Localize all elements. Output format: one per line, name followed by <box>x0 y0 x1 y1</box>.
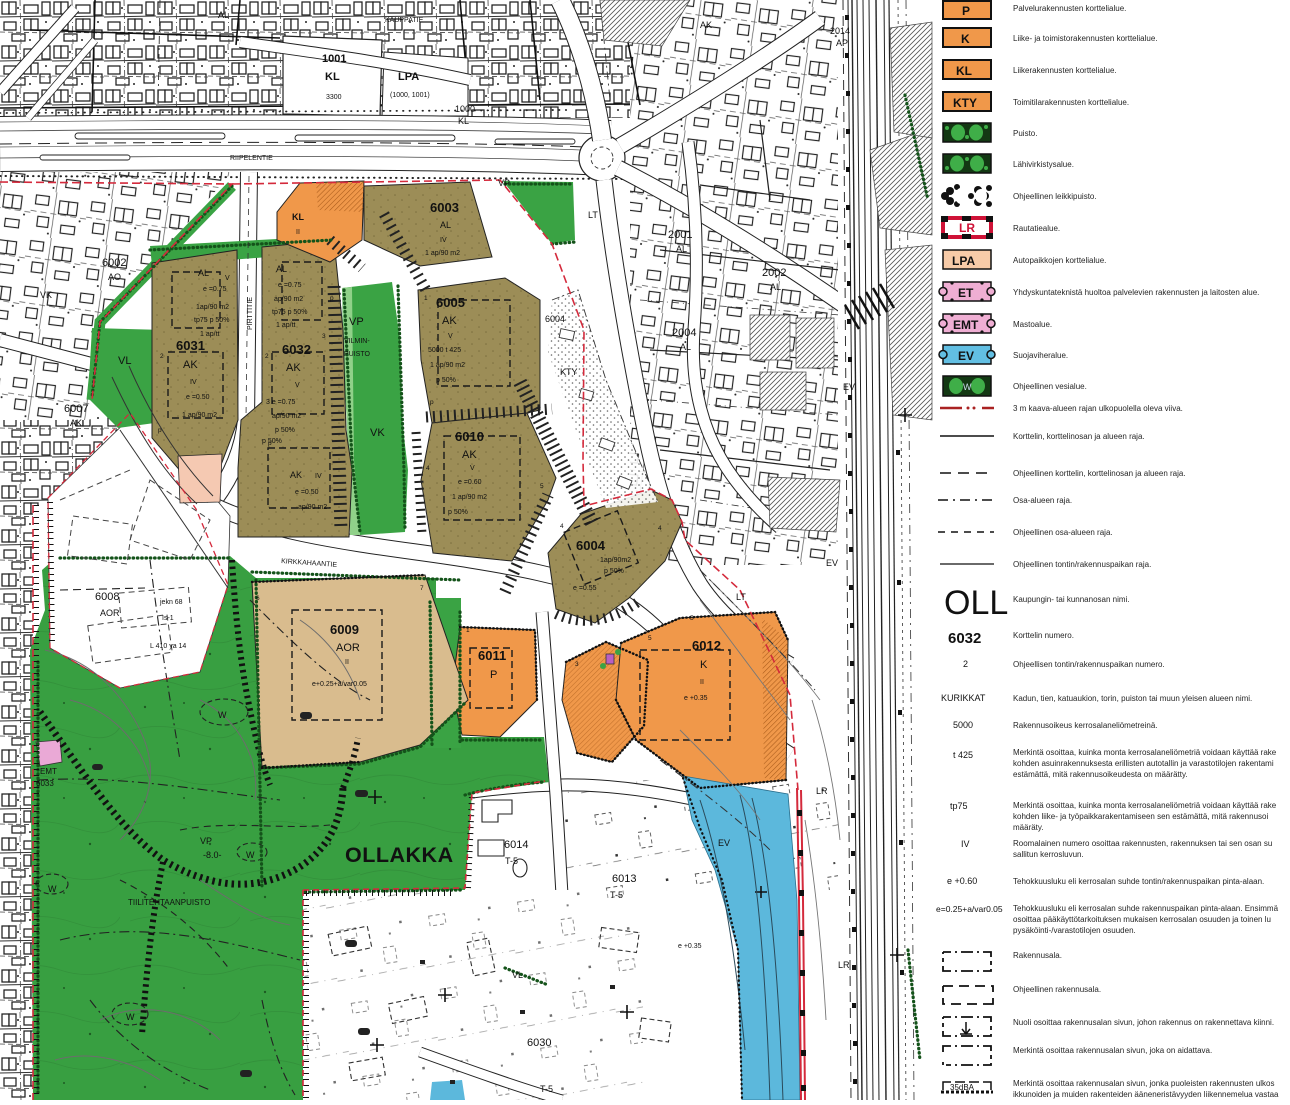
svg-text:osoittaa pääkäyttötarkoituksen: osoittaa pääkäyttötarkoituksen mukaisen … <box>1013 915 1271 924</box>
svg-text:KL: KL <box>292 212 304 222</box>
svg-text:6014: 6014 <box>504 839 528 851</box>
svg-text:PIRTTITIE: PIRTTITIE <box>247 297 254 330</box>
svg-text:e +0.60: e +0.60 <box>947 876 977 886</box>
svg-text:Korttelin, korttelinosan ja al: Korttelin, korttelinosan ja alueen raja. <box>1013 432 1145 441</box>
svg-text:6030: 6030 <box>527 1037 551 1049</box>
svg-text:6012: 6012 <box>692 638 721 653</box>
svg-text:EV: EV <box>958 349 974 363</box>
svg-text:LPA: LPA <box>398 71 419 83</box>
svg-text:5: 5 <box>540 483 544 490</box>
svg-text:Ohjeellinen leikkipuisto.: Ohjeellinen leikkipuisto. <box>1013 192 1097 201</box>
svg-text:määräty.: määräty. <box>1013 823 1044 832</box>
svg-text:T-5: T-5 <box>540 1084 553 1094</box>
svg-text:Nuoli osoittaa rakennusalan si: Nuoli osoittaa rakennusalan sivun, johon… <box>1013 1018 1274 1027</box>
svg-text:3 m kaava-alueen rajan ulkopuo: 3 m kaava-alueen rajan ulkopuolella olev… <box>1013 404 1183 413</box>
svg-text:4: 4 <box>658 525 662 532</box>
svg-text:Yhdyskuntateknistä huoltoa pal: Yhdyskuntateknistä huoltoa palvelevien r… <box>1013 288 1259 297</box>
svg-text:Toimitilarakennusten korttelia: Toimitilarakennusten korttelialue. <box>1013 98 1129 107</box>
svg-text:V: V <box>448 333 453 340</box>
svg-text:6007: 6007 <box>64 403 88 415</box>
svg-text:W: W <box>246 850 255 860</box>
svg-text:2004: 2004 <box>672 327 696 339</box>
svg-text:VK: VK <box>370 427 385 439</box>
svg-text:1: 1 <box>466 627 470 634</box>
svg-text:Rautatiealue.: Rautatiealue. <box>1013 224 1060 233</box>
svg-text:Merkintä osoittaa rakennusalan: Merkintä osoittaa rakennusalan sivun, jo… <box>1013 1046 1212 1055</box>
svg-text:1 ap/90 m2: 1 ap/90 m2 <box>430 362 465 369</box>
svg-text:Tehokkuusluku eli kerrosalan s: Tehokkuusluku eli kerrosalan suhde tonti… <box>1013 877 1264 886</box>
svg-text:6002: 6002 <box>102 257 126 269</box>
svg-text:6032: 6032 <box>282 342 311 357</box>
svg-text:6003: 6003 <box>430 200 459 215</box>
svg-text:AL: AL <box>770 282 781 292</box>
svg-text:LR: LR <box>816 786 828 796</box>
svg-text:ET: ET <box>958 286 974 300</box>
svg-text:AK: AK <box>286 362 301 374</box>
svg-text:VP: VP <box>200 836 212 846</box>
svg-text:VL: VL <box>118 355 131 367</box>
svg-text:KL: KL <box>956 64 972 78</box>
svg-text:p: p <box>268 440 272 447</box>
svg-text:T-5: T-5 <box>505 856 518 866</box>
svg-text:II: II <box>700 679 704 686</box>
svg-text:2: 2 <box>963 659 968 669</box>
svg-text:6031: 6031 <box>176 338 205 353</box>
svg-text:IV: IV <box>440 237 447 244</box>
svg-text:AK: AK <box>442 315 457 327</box>
svg-text:Roomalainen numero osoittaa ra: Roomalainen numero osoittaa rakennusten,… <box>1013 839 1272 848</box>
svg-text:ap/90 m2: ap/90 m2 <box>272 413 301 420</box>
svg-text:Liikerakennusten korttelialue.: Liikerakennusten korttelialue. <box>1013 66 1117 75</box>
svg-text:V: V <box>295 382 300 389</box>
svg-text:p: p <box>430 399 434 406</box>
svg-text:tp75 p 50%: tp75 p 50% <box>272 309 307 316</box>
svg-text:pysäköinti-/varastotilojen osu: pysäköinti-/varastotilojen osuuden. <box>1013 926 1136 935</box>
svg-text:Merkintä osoittaa, kuinka mont: Merkintä osoittaa, kuinka monta kerrosal… <box>1013 748 1277 757</box>
svg-text:VILMIN-: VILMIN- <box>344 338 370 345</box>
svg-text:Korttelin numero.: Korttelin numero. <box>1013 631 1074 640</box>
svg-text:t 425: t 425 <box>953 750 973 760</box>
svg-text:KURIKKAT: KURIKKAT <box>941 693 986 703</box>
svg-text:AL: AL <box>198 268 209 278</box>
svg-text:p 50%: p 50% <box>262 438 282 445</box>
svg-text:AK: AK <box>700 20 712 30</box>
svg-text:e +0.35: e +0.35 <box>684 695 708 702</box>
svg-text:AK: AK <box>70 418 82 428</box>
svg-text:1 ap/tt: 1 ap/tt <box>200 331 220 338</box>
svg-text:6: 6 <box>256 595 260 602</box>
svg-text:KTY: KTY <box>560 367 578 377</box>
svg-text:6009: 6009 <box>330 622 359 637</box>
svg-text:Kaupungin- tai kunnanosan nimi: Kaupungin- tai kunnanosan nimi. <box>1013 595 1130 604</box>
svg-text:e=0.25+a/var0.05: e=0.25+a/var0.05 <box>936 904 1003 914</box>
svg-text:Rakennusala.: Rakennusala. <box>1013 951 1062 960</box>
svg-text:6004: 6004 <box>545 314 565 324</box>
svg-text:e =0.60: e =0.60 <box>458 479 482 486</box>
svg-text:1: 1 <box>424 295 428 302</box>
svg-text:Ohjeellinen osa-alueen raja.: Ohjeellinen osa-alueen raja. <box>1013 528 1113 537</box>
svg-text:Merkintä osoittaa, kuinka mont: Merkintä osoittaa, kuinka monta kerrosal… <box>1013 801 1277 810</box>
svg-text:Tehokkuusluku eli kerrosalan s: Tehokkuusluku eli kerrosalan suhde raken… <box>1013 904 1279 913</box>
svg-text:kohden liike- ja työpaikkarake: kohden liike- ja työpaikkarakentamiseen … <box>1013 812 1268 821</box>
svg-text:5: 5 <box>690 615 694 622</box>
svg-text:6004: 6004 <box>576 538 606 553</box>
svg-text:Ohjeellinen korttelin, korttel: Ohjeellinen korttelin, korttelinosan ja … <box>1013 469 1186 478</box>
svg-text:1ap/90m2: 1ap/90m2 <box>600 557 631 564</box>
svg-text:P: P <box>962 4 970 18</box>
svg-text:AL: AL <box>440 220 451 230</box>
svg-text:Ohjeellinen tontin/rakennuspai: Ohjeellinen tontin/rakennuspaikan raja. <box>1013 560 1151 569</box>
svg-text:AO: AO <box>108 272 121 282</box>
svg-text:AK: AK <box>290 470 302 480</box>
svg-text:V: V <box>225 275 230 282</box>
svg-text:jekn 68: jekn 68 <box>159 599 183 606</box>
svg-text:estämättä, mitä rakennusoikeud: estämättä, mitä rakennusoikeudesta on mä… <box>1013 770 1188 779</box>
svg-text:1001: 1001 <box>322 53 346 65</box>
svg-text:AL: AL <box>218 10 229 20</box>
svg-text:AL: AL <box>680 342 691 352</box>
svg-text:II: II <box>296 229 300 236</box>
svg-text:EV: EV <box>826 558 838 568</box>
svg-text:LPA: LPA <box>952 254 975 268</box>
svg-text:AP: AP <box>836 38 848 48</box>
svg-text:TIILITEHTAANPUISTO: TIILITEHTAANPUISTO <box>128 898 210 907</box>
svg-text:Mastoalue.: Mastoalue. <box>1013 320 1052 329</box>
svg-text:e =0.50: e =0.50 <box>295 489 319 496</box>
svg-text:Is-1: Is-1 <box>162 615 174 622</box>
svg-text:1 ap/90 m2: 1 ap/90 m2 <box>452 494 487 501</box>
svg-text:tp75: tp75 <box>950 801 968 811</box>
svg-text:EV: EV <box>718 838 730 848</box>
svg-text:2: 2 <box>265 353 269 360</box>
svg-text:Ohjeellinen rakennusala.: Ohjeellinen rakennusala. <box>1013 985 1101 994</box>
svg-text:6033: 6033 <box>36 779 54 788</box>
svg-text:PUISTO: PUISTO <box>344 351 370 358</box>
svg-text:p: p <box>330 295 334 302</box>
svg-text:1 ap/tt: 1 ap/tt <box>276 322 296 329</box>
svg-text:6013: 6013 <box>612 873 636 885</box>
svg-text:1 ap/90 m2: 1 ap/90 m2 <box>182 412 217 419</box>
svg-text:KAUPPATIE: KAUPPATIE <box>385 17 424 24</box>
svg-text:P: P <box>490 669 497 681</box>
svg-text:VK: VK <box>40 290 52 300</box>
svg-text:Suojaviheralue.: Suojaviheralue. <box>1013 351 1068 360</box>
svg-text:K: K <box>961 32 970 46</box>
svg-text:EMT: EMT <box>953 318 979 332</box>
svg-text:6011: 6011 <box>478 648 506 663</box>
svg-text:AK: AK <box>183 359 198 371</box>
svg-text:1000: 1000 <box>455 104 475 114</box>
svg-text:p 50%: p 50% <box>275 427 295 434</box>
svg-text:7: 7 <box>420 585 424 592</box>
svg-text:e+0.25+a/var0.05: e+0.25+a/var0.05 <box>312 681 367 688</box>
svg-text:W: W <box>218 710 227 720</box>
svg-text:LT: LT <box>588 210 598 220</box>
svg-text:LR: LR <box>838 960 850 970</box>
svg-text:EMT: EMT <box>40 767 57 776</box>
svg-text:VP: VP <box>498 178 510 188</box>
svg-text:AL: AL <box>276 264 287 274</box>
svg-text:4: 4 <box>560 523 564 530</box>
svg-text:V: V <box>470 465 475 472</box>
svg-text:Ohjeellisen tontin/rakennuspai: Ohjeellisen tontin/rakennuspaikan numero… <box>1013 660 1165 669</box>
svg-text:kohden asuinrakennuksesta eril: kohden asuinrakennuksesta erillisten aut… <box>1013 759 1274 768</box>
svg-text:6032: 6032 <box>948 630 981 647</box>
svg-text:T-5: T-5 <box>610 890 623 900</box>
svg-text:Ohjeellinen vesialue.: Ohjeellinen vesialue. <box>1013 382 1087 391</box>
svg-text:6005: 6005 <box>436 295 465 310</box>
svg-text:Merkintä osoittaa rakennusalan: Merkintä osoittaa rakennusalan sivun, jo… <box>1013 1079 1275 1088</box>
svg-text:Kadun, tien, katuaukion, torin: Kadun, tien, katuaukion, torin, puiston … <box>1013 694 1252 703</box>
svg-text:VL: VL <box>512 970 523 980</box>
svg-text:ikkunoiden ja muiden rakenteid: ikkunoiden ja muiden rakenteiden äänener… <box>1013 1090 1279 1099</box>
svg-text:Rakennusoikeus kerrosalaneliöm: Rakennusoikeus kerrosalaneliömetreinä. <box>1013 721 1158 730</box>
svg-text:6010: 6010 <box>455 429 484 444</box>
svg-text:VP: VP <box>349 316 364 328</box>
svg-text:II: II <box>345 659 349 666</box>
svg-text:e =0.75: e =0.75 <box>203 286 227 293</box>
svg-text:AOR: AOR <box>336 642 360 654</box>
svg-text:(1000, 1001): (1000, 1001) <box>390 92 430 99</box>
svg-text:Autopaikkojen korttelialue.: Autopaikkojen korttelialue. <box>1013 256 1106 265</box>
svg-text:e =0.50: e =0.50 <box>186 394 210 401</box>
svg-text:ap/90 m2: ap/90 m2 <box>298 504 327 511</box>
svg-text:2001: 2001 <box>668 229 692 241</box>
svg-text:e =0.75: e =0.75 <box>278 282 302 289</box>
svg-text:Palvelurakennusten korttelialu: Palvelurakennusten korttelialue. <box>1013 4 1126 13</box>
svg-text:1 ap/90 m2: 1 ap/90 m2 <box>425 250 460 257</box>
svg-text:2014: 2014 <box>830 26 850 36</box>
svg-text:Liike- ja toimistorakennusten: Liike- ja toimistorakennusten korttelial… <box>1013 34 1158 43</box>
svg-text:KL: KL <box>325 71 340 83</box>
svg-text:3: 3 <box>575 661 579 668</box>
svg-text:3: 3 <box>322 333 326 340</box>
svg-text:3300: 3300 <box>326 94 342 101</box>
svg-text:K: K <box>700 659 708 671</box>
svg-text:p 50%: p 50% <box>448 509 468 516</box>
svg-text:p 50%: p 50% <box>604 568 624 575</box>
svg-text:IV: IV <box>315 473 322 480</box>
svg-text:3 e =0.75: 3 e =0.75 <box>266 399 295 406</box>
svg-text:IV: IV <box>961 839 970 849</box>
svg-text:e +0.35: e +0.35 <box>678 943 702 950</box>
svg-text:1ap/90 m2: 1ap/90 m2 <box>196 304 229 311</box>
svg-text:KTY: KTY <box>953 96 977 110</box>
svg-text:KL: KL <box>458 116 469 126</box>
svg-text:ap/90 m2: ap/90 m2 <box>274 296 303 303</box>
svg-text:p 50%: p 50% <box>436 377 456 384</box>
svg-text:AL: AL <box>676 244 687 254</box>
svg-text:OLLAKKA: OLLAKKA <box>345 843 454 867</box>
svg-text:AK: AK <box>462 449 477 461</box>
svg-text:LR: LR <box>959 221 975 235</box>
svg-text:RIIPELENTIE: RIIPELENTIE <box>230 155 273 162</box>
svg-text:2002: 2002 <box>762 267 786 279</box>
svg-text:W: W <box>126 1012 135 1022</box>
svg-text:p: p <box>158 427 162 434</box>
svg-text:5000 t 425: 5000 t 425 <box>428 347 461 354</box>
svg-text:Osa-alueen raja.: Osa-alueen raja. <box>1013 496 1072 505</box>
svg-text:sallitun kerrosluvun.: sallitun kerrosluvun. <box>1013 850 1084 859</box>
svg-text:e =0.55: e =0.55 <box>573 585 597 592</box>
svg-text:5000: 5000 <box>953 720 973 730</box>
svg-text:AOR: AOR <box>100 608 120 618</box>
svg-text:Lähivirkistysalue.: Lähivirkistysalue. <box>1013 160 1074 169</box>
svg-text:tp75 p 50%: tp75 p 50% <box>194 317 229 324</box>
svg-text:OLL: OLL <box>944 584 1008 622</box>
svg-text:W: W <box>48 884 57 894</box>
svg-text:EV: EV <box>843 382 855 392</box>
svg-text:IV: IV <box>190 379 197 386</box>
svg-text:2: 2 <box>160 353 164 360</box>
svg-text:5: 5 <box>648 635 652 642</box>
svg-text:-8.0-: -8.0- <box>203 850 222 860</box>
svg-text:L 410 ya 14: L 410 ya 14 <box>150 643 186 650</box>
svg-text:LT: LT <box>736 592 746 602</box>
svg-text:Puisto.: Puisto. <box>1013 129 1037 138</box>
svg-text:6008: 6008 <box>95 591 119 603</box>
svg-text:W: W <box>963 382 972 392</box>
svg-text:4: 4 <box>426 465 430 472</box>
